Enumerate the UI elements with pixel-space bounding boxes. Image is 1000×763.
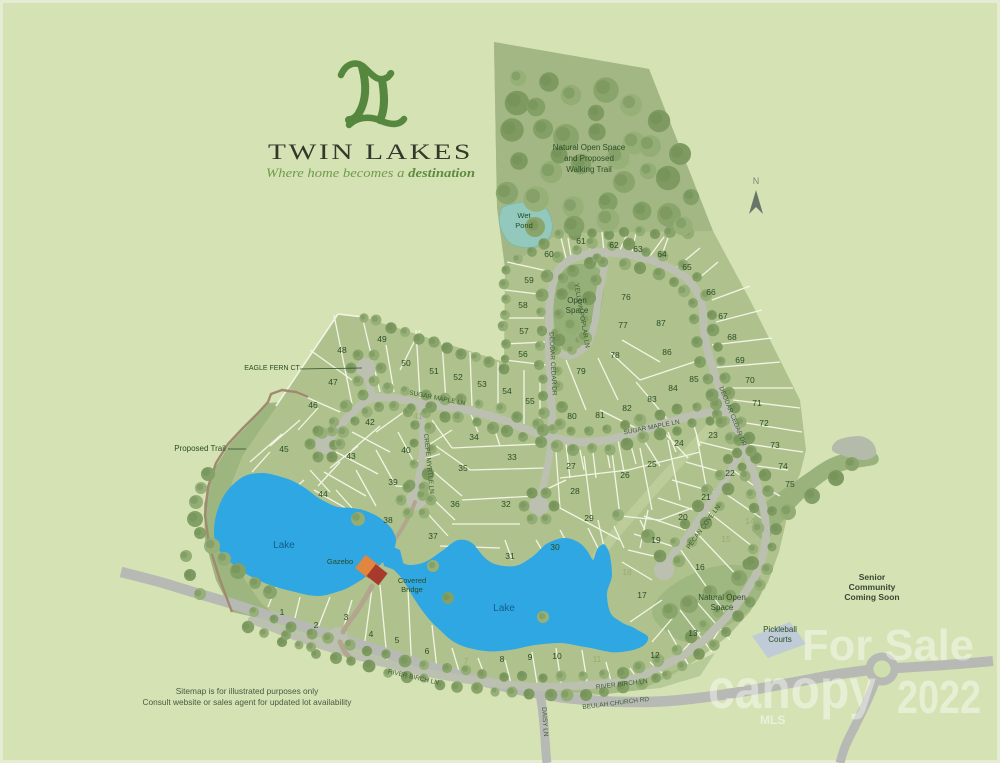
svg-text:EAGLE FERN CT: EAGLE FERN CT xyxy=(244,365,300,372)
svg-text:MLS: MLS xyxy=(760,713,785,727)
svg-text:Coming Soon: Coming Soon xyxy=(844,592,899,602)
svg-text:38: 38 xyxy=(383,515,393,525)
svg-text:70: 70 xyxy=(745,375,755,385)
svg-text:11: 11 xyxy=(593,654,602,664)
svg-text:68: 68 xyxy=(727,332,737,342)
svg-text:Covered: Covered xyxy=(398,576,426,585)
svg-text:61: 61 xyxy=(576,236,586,246)
svg-text:78: 78 xyxy=(610,350,620,360)
svg-text:50: 50 xyxy=(401,358,411,368)
svg-text:30: 30 xyxy=(550,542,560,552)
svg-text:45: 45 xyxy=(279,444,289,454)
svg-text:canopy: canopy xyxy=(708,657,876,720)
svg-text:85: 85 xyxy=(689,374,699,384)
svg-text:Consult website or sales agent: Consult website or sales agent for updat… xyxy=(143,697,353,707)
svg-text:and Proposed: and Proposed xyxy=(564,154,614,163)
svg-text:21: 21 xyxy=(701,492,711,502)
svg-text:69: 69 xyxy=(735,355,745,365)
svg-text:1: 1 xyxy=(280,607,285,617)
svg-text:8: 8 xyxy=(500,654,505,664)
svg-text:TWIN LAKES: TWIN LAKES xyxy=(268,139,473,164)
svg-text:48: 48 xyxy=(337,345,347,355)
svg-text:29: 29 xyxy=(584,513,594,523)
svg-text:66: 66 xyxy=(706,287,716,297)
svg-text:Space: Space xyxy=(711,603,734,612)
svg-text:3: 3 xyxy=(344,612,349,622)
svg-text:54: 54 xyxy=(502,386,512,396)
svg-text:73: 73 xyxy=(770,440,780,450)
svg-text:47: 47 xyxy=(328,377,338,387)
svg-text:14: 14 xyxy=(745,516,755,526)
svg-text:35: 35 xyxy=(458,463,468,473)
svg-text:36: 36 xyxy=(450,499,460,509)
svg-text:Lake: Lake xyxy=(273,540,295,551)
svg-text:Community: Community xyxy=(849,582,896,592)
svg-text:49: 49 xyxy=(377,334,387,344)
svg-text:22: 22 xyxy=(725,468,735,478)
svg-text:7: 7 xyxy=(464,656,469,666)
svg-text:Space: Space xyxy=(566,306,589,315)
svg-text:25: 25 xyxy=(647,459,657,469)
svg-text:82: 82 xyxy=(622,403,632,413)
svg-text:44: 44 xyxy=(318,489,328,499)
svg-text:24: 24 xyxy=(674,438,684,448)
svg-text:64: 64 xyxy=(657,249,667,259)
svg-text:58: 58 xyxy=(518,300,528,310)
svg-text:77: 77 xyxy=(618,320,628,330)
svg-text:Walking Trail: Walking Trail xyxy=(566,165,612,174)
svg-text:Lake: Lake xyxy=(493,603,515,614)
svg-text:Proposed Trail: Proposed Trail xyxy=(174,444,226,453)
svg-text:20: 20 xyxy=(678,512,688,522)
svg-text:42: 42 xyxy=(365,417,375,427)
svg-text:62: 62 xyxy=(609,240,619,250)
svg-text:9: 9 xyxy=(528,652,533,662)
svg-text:Where home becomes a destinati: Where home becomes a destination xyxy=(266,166,475,180)
svg-text:Natural Open Space: Natural Open Space xyxy=(553,143,626,152)
svg-text:2: 2 xyxy=(314,620,319,630)
svg-text:59: 59 xyxy=(524,275,534,285)
svg-text:43: 43 xyxy=(346,451,356,461)
svg-text:41: 41 xyxy=(413,411,423,421)
svg-text:76: 76 xyxy=(621,292,631,302)
svg-text:Wet: Wet xyxy=(517,211,531,220)
svg-text:39: 39 xyxy=(388,477,398,487)
svg-text:67: 67 xyxy=(718,311,728,321)
svg-text:74: 74 xyxy=(778,461,788,471)
svg-text:Bridge: Bridge xyxy=(401,585,423,594)
svg-text:75: 75 xyxy=(785,479,795,489)
svg-text:27: 27 xyxy=(566,461,576,471)
svg-text:40: 40 xyxy=(401,445,411,455)
svg-text:72: 72 xyxy=(759,418,769,428)
svg-text:57: 57 xyxy=(519,326,529,336)
svg-text:Senior: Senior xyxy=(859,572,886,582)
svg-text:28: 28 xyxy=(570,486,580,496)
svg-text:Pond: Pond xyxy=(515,221,533,230)
svg-text:17: 17 xyxy=(637,590,647,600)
svg-text:46: 46 xyxy=(308,400,318,410)
svg-text:81: 81 xyxy=(595,410,605,420)
svg-text:79: 79 xyxy=(576,366,586,376)
svg-text:5: 5 xyxy=(395,635,400,645)
svg-text:16: 16 xyxy=(695,562,705,572)
svg-text:52: 52 xyxy=(453,372,463,382)
svg-text:Sitemap is for illustrated pur: Sitemap is for illustrated purposes only xyxy=(176,686,319,696)
svg-text:N: N xyxy=(753,176,760,186)
svg-text:6: 6 xyxy=(425,646,430,656)
svg-text:87: 87 xyxy=(656,318,666,328)
svg-text:83: 83 xyxy=(647,394,657,404)
svg-text:4: 4 xyxy=(369,629,374,639)
svg-text:15: 15 xyxy=(721,534,731,544)
svg-text:80: 80 xyxy=(567,411,577,421)
svg-text:Open: Open xyxy=(567,296,587,305)
svg-text:51: 51 xyxy=(429,366,439,376)
svg-text:19: 19 xyxy=(651,535,661,545)
svg-text:84: 84 xyxy=(668,383,678,393)
svg-text:Pickleball: Pickleball xyxy=(763,625,797,634)
svg-text:Natural Open: Natural Open xyxy=(698,593,746,602)
svg-text:33: 33 xyxy=(507,452,517,462)
svg-text:32: 32 xyxy=(501,499,511,509)
svg-text:12: 12 xyxy=(650,650,660,660)
svg-text:31: 31 xyxy=(505,551,515,561)
svg-text:63: 63 xyxy=(633,244,643,254)
svg-text:34: 34 xyxy=(469,432,479,442)
svg-text:86: 86 xyxy=(662,347,672,357)
svg-text:53: 53 xyxy=(477,379,487,389)
svg-text:37: 37 xyxy=(428,531,438,541)
svg-text:65: 65 xyxy=(682,262,692,272)
svg-text:2022: 2022 xyxy=(897,671,981,723)
svg-text:23: 23 xyxy=(708,430,718,440)
svg-text:55: 55 xyxy=(525,396,535,406)
svg-text:13: 13 xyxy=(688,628,698,638)
svg-text:18: 18 xyxy=(622,567,632,577)
svg-text:71: 71 xyxy=(752,398,762,408)
svg-text:Courts: Courts xyxy=(768,635,792,644)
svg-text:Gazebo: Gazebo xyxy=(327,557,353,566)
svg-text:26: 26 xyxy=(620,470,630,480)
svg-text:56: 56 xyxy=(518,349,528,359)
svg-text:10: 10 xyxy=(552,651,562,661)
svg-text:60: 60 xyxy=(544,249,554,259)
